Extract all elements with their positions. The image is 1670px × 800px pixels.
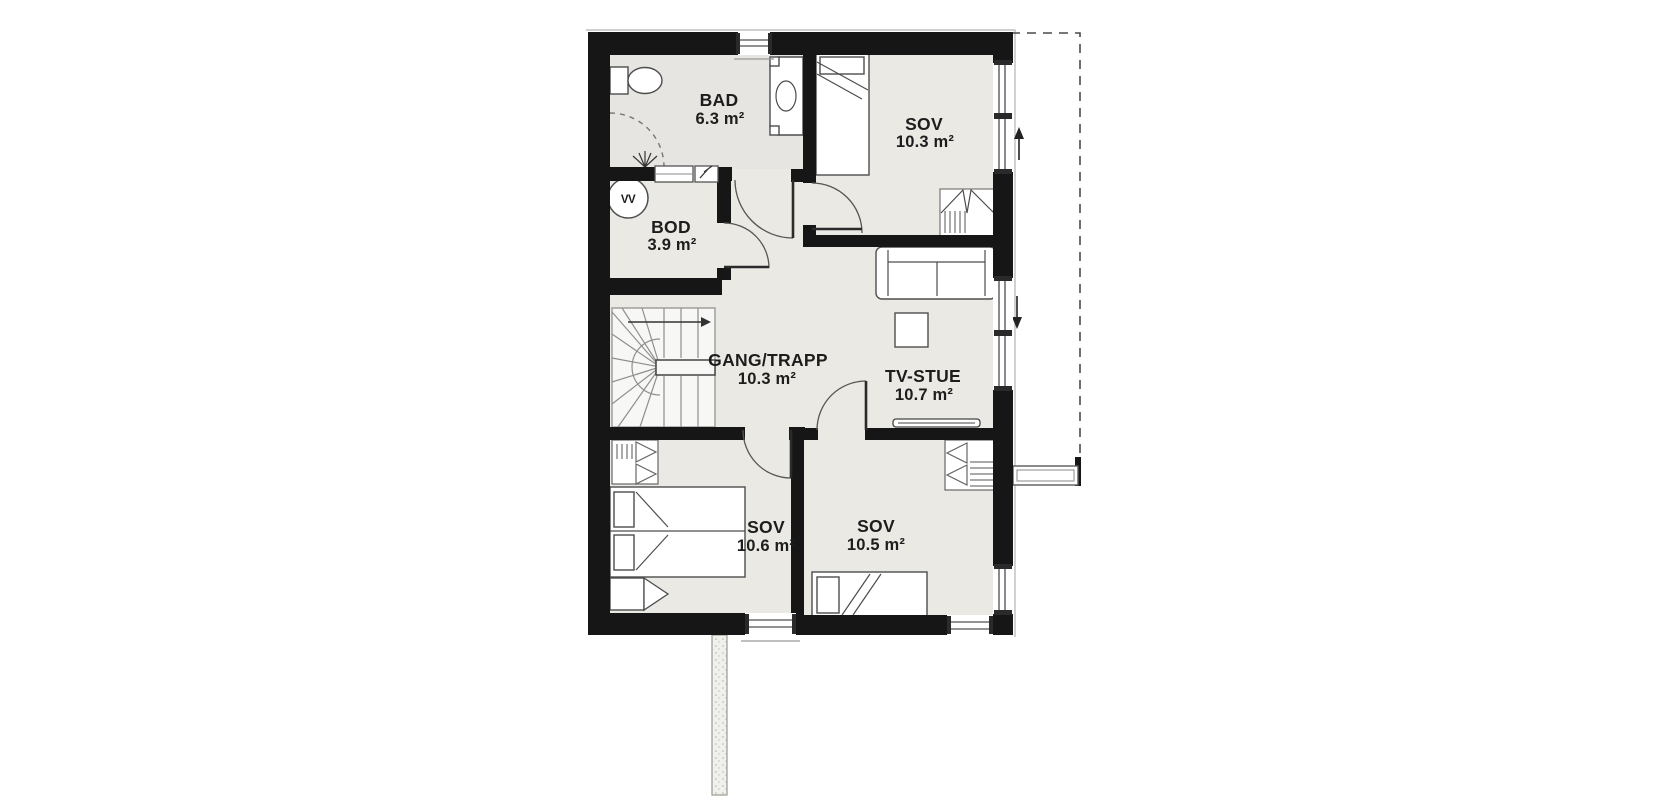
- room-area-bad: 6.3 m²: [696, 110, 745, 128]
- sofa-icon: [876, 247, 996, 299]
- bed-double-sov-106: [610, 487, 745, 577]
- window-right-sov-103: [993, 60, 1013, 174]
- room-name-bod: BOD: [651, 217, 691, 237]
- bed-single-sov-105: [812, 572, 927, 618]
- window-bottom-sov-106: [741, 613, 800, 641]
- room-area-sov-103: 10.3 m²: [896, 133, 955, 151]
- room-area-tv-stue: 10.7 m²: [895, 386, 954, 404]
- toilet-icon: [610, 67, 662, 94]
- wall-hatch-box: [655, 166, 693, 182]
- wardrobe-sov-106: [612, 440, 658, 484]
- floor-plan: VV: [0, 0, 1670, 800]
- exterior-beam: [1013, 466, 1078, 485]
- side-table-icon: [895, 313, 928, 347]
- room-label-bad: BAD 6.3 m²: [696, 90, 745, 128]
- window-top-bathroom: [734, 32, 774, 59]
- roof-overhang-dashed-outline: [1011, 33, 1081, 486]
- window-right-sov-105: [993, 564, 1013, 615]
- room-name-sov-106: SOV: [747, 517, 785, 537]
- arrow-down-icon: [1012, 296, 1022, 329]
- room-name-tv-stue: TV-STUE: [885, 366, 961, 386]
- staircase: [612, 308, 715, 427]
- room-area-gang: 10.3 m²: [738, 370, 797, 388]
- water-heater-icon: VV: [608, 178, 648, 218]
- room-name-sov-103: SOV: [905, 114, 943, 134]
- window-right-tv-stue: [993, 276, 1013, 391]
- exterior-wall-stub: [712, 635, 727, 795]
- window-bottom-sov-105: [947, 615, 993, 635]
- room-label-tv-stue: TV-STUE 10.7 m²: [885, 366, 961, 404]
- room-area-bod: 3.9 m²: [648, 236, 697, 254]
- water-heater-label: VV: [621, 194, 636, 206]
- room-name-sov-105: SOV: [857, 516, 895, 536]
- bed-single-sov-103: [816, 53, 869, 175]
- vanity-basin-icon: [770, 57, 803, 135]
- wardrobe-sov-103: [940, 189, 995, 236]
- tv-icon: [893, 419, 980, 427]
- room-area-sov-105: 10.5 m²: [847, 536, 906, 554]
- room-name-bad: BAD: [700, 90, 739, 110]
- room-label-bod: BOD 3.9 m²: [648, 217, 697, 254]
- electrical-cabinet-icon: [695, 166, 718, 182]
- room-name-gang: GANG/TRAPP: [708, 350, 828, 370]
- room-area-sov-106: 10.6 m²: [737, 537, 796, 555]
- wardrobe-sov-105: [945, 440, 995, 490]
